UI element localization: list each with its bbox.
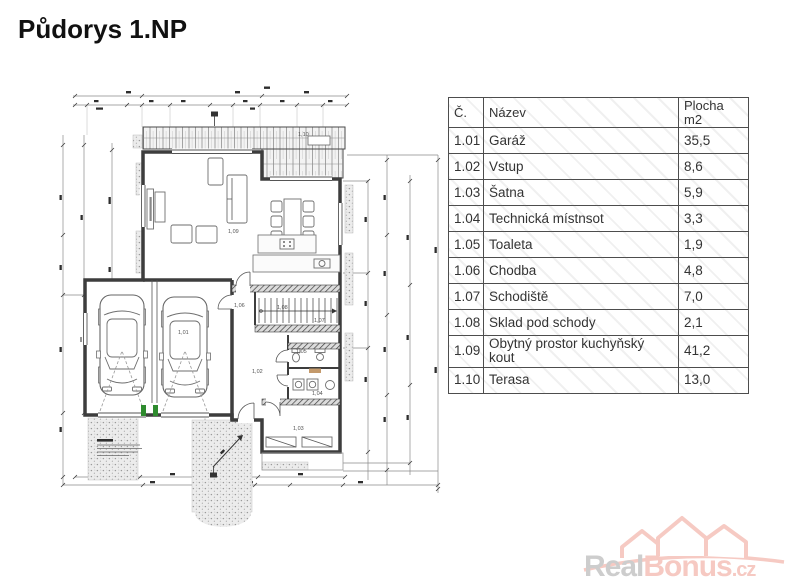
- room-name-cell: Terasa: [484, 367, 679, 393]
- room-name-cell: Technická místnsot: [484, 206, 679, 232]
- room-area-cell: 8,6: [679, 154, 749, 180]
- room-area-cell: 1,9: [679, 232, 749, 258]
- logo-cz-text: .cz: [732, 559, 756, 581]
- realbonus-logo-text: RealBonus.cz: [584, 552, 755, 582]
- room-number-cell: 1.05: [449, 232, 484, 258]
- tech-room-door-leaf: [309, 369, 321, 374]
- room-label-garaz: 1,01: [178, 330, 189, 336]
- table-header-row: Č. Název Plocha m2: [449, 98, 749, 128]
- room-name-cell: Šatna: [484, 180, 679, 206]
- table-row: 1.05 Toaleta 1,9: [449, 232, 749, 258]
- col-header-area: Plocha m2: [679, 98, 749, 128]
- room-label-technicka: 1,04: [312, 391, 323, 397]
- table-row: 1.03 Šatna 5,9: [449, 180, 749, 206]
- section-marker: [210, 473, 217, 478]
- logo-bonus-text: Bonus: [643, 550, 731, 583]
- room-table: Č. Název Plocha m2 1.01 Garáž 35,5 1.02 …: [448, 97, 749, 394]
- page-title: Půdorys 1.NP: [18, 14, 187, 45]
- room-name-cell: Garáž: [484, 128, 679, 154]
- room-label-chodba: 1,06: [234, 303, 245, 309]
- room-area-cell: 2,1: [679, 310, 749, 336]
- car-2: [160, 297, 211, 397]
- threshold-marker: [153, 405, 158, 416]
- page: Půdorys 1.NP: [0, 0, 800, 586]
- room-name-cell: Schodiště: [484, 284, 679, 310]
- tv: [150, 197, 152, 221]
- room-area-cell: 41,2: [679, 336, 749, 367]
- room-area-cell: 7,0: [679, 284, 749, 310]
- floor-plan: 1,10 1,09 1,01 1,06 1,08 1,07 1,02 1,05 …: [0, 85, 460, 545]
- room-number-cell: 1.01: [449, 128, 484, 154]
- kitchen-counter: [253, 255, 340, 272]
- table-row: 1.09 Obytný prostor kuchyňský kout 41,2: [449, 336, 749, 367]
- room-label-toaleta: 1,05: [296, 349, 307, 355]
- room-label-obytny: 1,09: [228, 229, 239, 235]
- table-row: 1.01 Garáž 35,5: [449, 128, 749, 154]
- room-label-satna: 1,03: [293, 426, 304, 432]
- floor-plan-drawing: 1,10 1,09 1,01 1,06 1,08 1,07 1,02 1,05 …: [0, 85, 460, 545]
- table-row: 1.07 Schodiště 7,0: [449, 284, 749, 310]
- logo-real-text: Real: [584, 550, 643, 583]
- room-number-cell: 1.03: [449, 180, 484, 206]
- table-row: 1.02 Vstup 8,6: [449, 154, 749, 180]
- threshold-marker: [141, 405, 146, 416]
- room-area-cell: 5,9: [679, 180, 749, 206]
- room-label-schodiste: 1,07: [314, 318, 325, 324]
- room-number-cell: 1.02: [449, 154, 484, 180]
- room-area-cell: 3,3: [679, 206, 749, 232]
- col-header-number: Č.: [449, 98, 484, 128]
- room-number-cell: 1.09: [449, 336, 484, 367]
- room-name-cell: Chodba: [484, 258, 679, 284]
- realbonus-logo: RealBonus.cz: [578, 506, 790, 582]
- section-marker: [211, 112, 218, 117]
- room-number-cell: 1.06: [449, 258, 484, 284]
- room-label-sklad: 1,08: [277, 305, 288, 311]
- room-area-cell: 4,8: [679, 258, 749, 284]
- room-label-terasa: 1,10: [298, 132, 309, 138]
- car-1: [97, 295, 148, 395]
- table-row: 1.08 Sklad pod schody 2,1: [449, 310, 749, 336]
- col-header-name: Název: [484, 98, 679, 128]
- doormat: [308, 136, 330, 145]
- room-area-cell: 35,5: [679, 128, 749, 154]
- room-name-cell: Obytný prostor kuchyňský kout: [484, 336, 679, 367]
- room-number-cell: 1.07: [449, 284, 484, 310]
- table-row: 1.06 Chodba 4,8: [449, 258, 749, 284]
- kitchen-island: [258, 235, 316, 253]
- room-table-container: Č. Název Plocha m2 1.01 Garáž 35,5 1.02 …: [448, 97, 749, 394]
- table-row: 1.04 Technická místnsot 3,3: [449, 206, 749, 232]
- room-number-cell: 1.08: [449, 310, 484, 336]
- room-label-vstup: 1,02: [252, 369, 263, 375]
- table-row: 1.10 Terasa 13,0: [449, 367, 749, 393]
- room-number-cell: 1.10: [449, 367, 484, 393]
- room-name-cell: Toaleta: [484, 232, 679, 258]
- room-name-cell: Vstup: [484, 154, 679, 180]
- room-number-cell: 1.04: [449, 206, 484, 232]
- room-area-cell: 13,0: [679, 367, 749, 393]
- room-name-cell: Sklad pod schody: [484, 310, 679, 336]
